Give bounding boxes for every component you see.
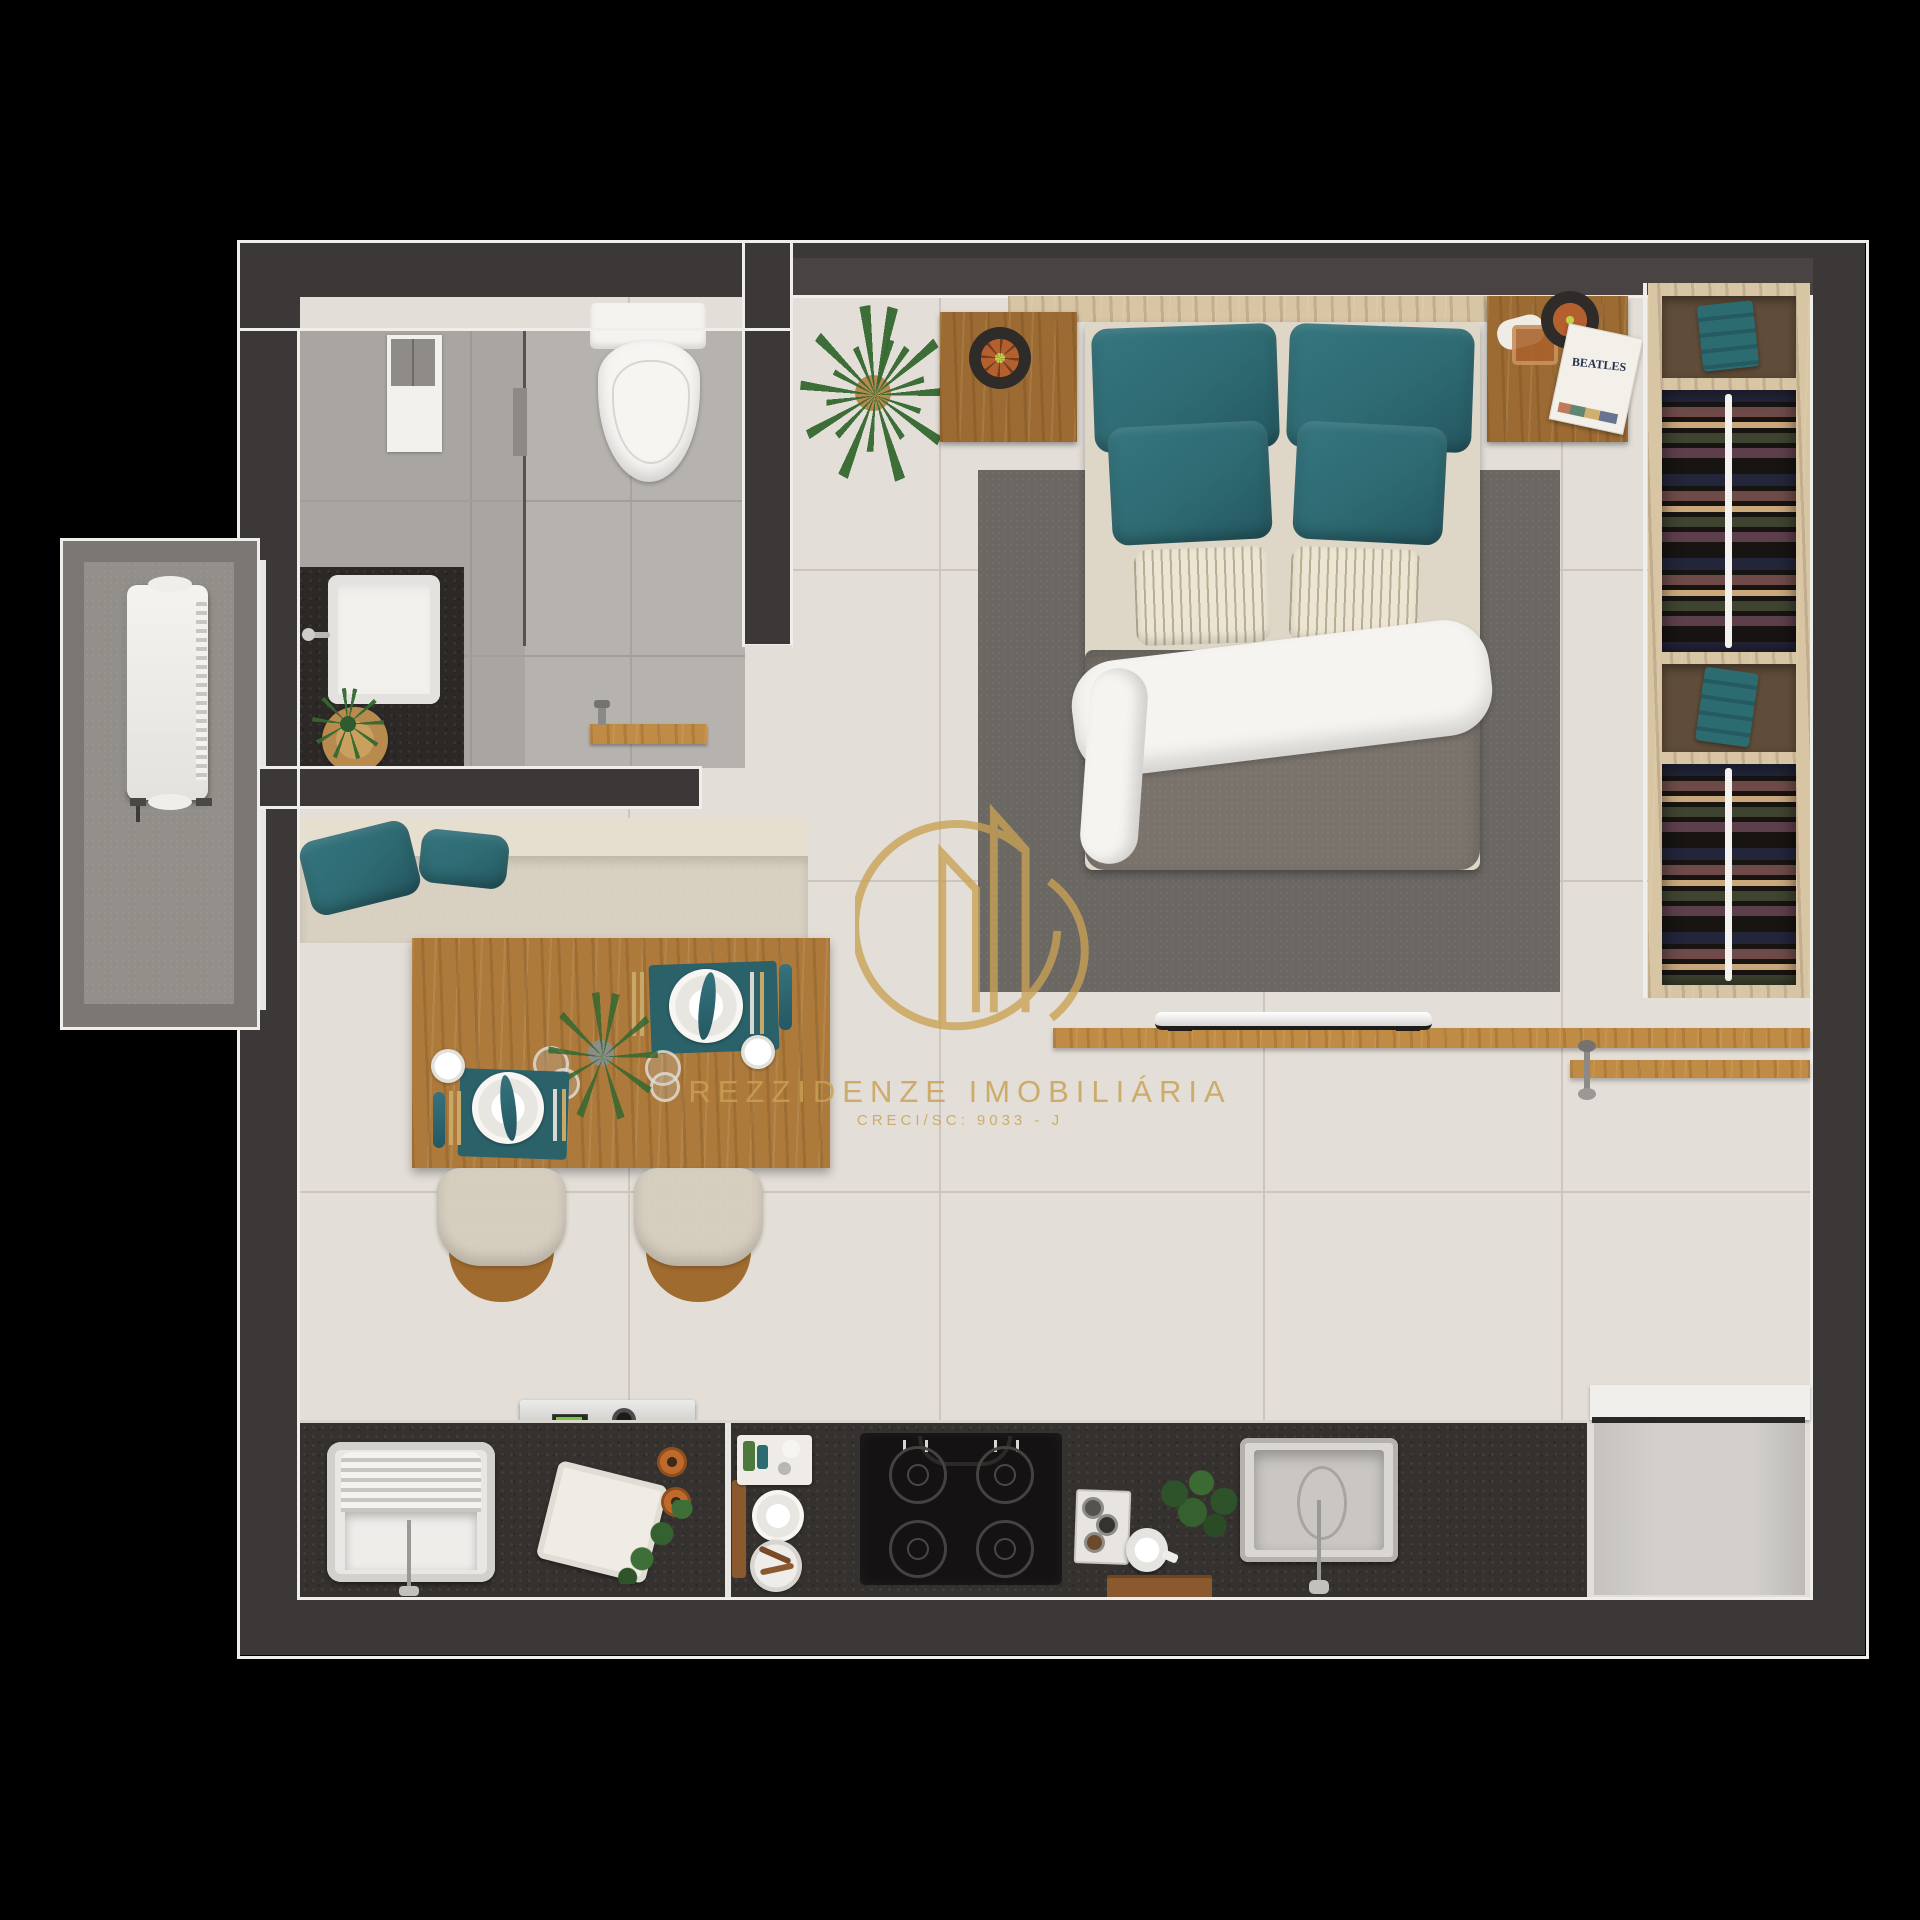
sink-faucet	[1317, 1500, 1321, 1588]
prep-plate	[752, 1490, 804, 1542]
orange-fruit	[657, 1447, 687, 1477]
trim	[790, 243, 793, 647]
folded-clothes-teal	[1697, 300, 1760, 371]
napkin-rolled	[433, 1092, 445, 1148]
wall-bathroom-bottom	[240, 768, 700, 808]
dining-chair	[437, 1168, 566, 1266]
bathroom-shelf	[590, 724, 707, 744]
tv-foot	[1168, 1026, 1192, 1031]
bed-pillow-striped	[1133, 546, 1271, 647]
bathroom-doorway-floor	[745, 645, 792, 768]
trim	[240, 328, 792, 331]
trim	[240, 766, 702, 769]
spice-ball	[778, 1462, 791, 1475]
ac-unit-louvers	[196, 602, 207, 780]
laundry-faucet	[407, 1520, 411, 1592]
wardrobe-trim	[1643, 283, 1647, 998]
ac-unit-frame-line	[124, 592, 127, 792]
tv-shelf	[1053, 1028, 1810, 1048]
spice-bottle-teal	[757, 1445, 768, 1469]
shower-wall-stub	[513, 388, 527, 456]
lower-shelf	[1570, 1060, 1810, 1078]
fridge-top	[1590, 1385, 1810, 1420]
counter-divider	[725, 1423, 731, 1600]
burner	[976, 1446, 1034, 1504]
trim	[1810, 297, 1813, 1600]
cutlery	[449, 1091, 453, 1145]
spice-egg	[782, 1440, 800, 1458]
cutlery	[750, 972, 754, 1034]
shower-glass-panel	[523, 331, 526, 646]
wardrobe-rail	[1725, 768, 1732, 981]
vanity-faucet-knob	[302, 628, 315, 641]
sink-faucet-base	[1309, 1580, 1329, 1594]
shelf-bracket-knob	[1578, 1040, 1596, 1052]
trim	[699, 766, 702, 809]
wall-bottom	[240, 1600, 1865, 1655]
trim	[742, 243, 745, 647]
ac-unit-fan-bulge	[148, 576, 192, 592]
shower-mixer-divider	[412, 339, 414, 386]
bed-pillow-teal-small	[1292, 420, 1448, 546]
ac-unit-foot	[130, 798, 146, 806]
sofa-pillow-teal	[417, 828, 510, 891]
kitchen-plant	[1152, 1468, 1242, 1542]
burner	[976, 1520, 1034, 1578]
ac-unit-foot	[196, 798, 212, 806]
laundry-faucet-handle	[399, 1586, 419, 1596]
ac-unit-pipe	[136, 806, 140, 822]
bathroom-shelf-faucet-cap	[594, 700, 610, 708]
brand-logo	[855, 762, 1093, 1080]
tv-foot	[1396, 1026, 1420, 1031]
floorplan-render: BEATLES	[0, 0, 1920, 1920]
cutlery	[760, 972, 764, 1034]
trim	[297, 331, 300, 1600]
condiment-jar	[1084, 1532, 1105, 1553]
napkin-rolled	[779, 964, 792, 1030]
burner	[889, 1520, 947, 1578]
vinyl-record-spokes	[981, 339, 1019, 377]
cutting-board-flat	[1107, 1578, 1212, 1598]
trim	[240, 806, 702, 809]
wall-right	[1813, 243, 1865, 1655]
side-cup	[741, 1035, 775, 1069]
dining-chair	[634, 1168, 763, 1266]
brand-name: REZZIDENZE IMOBILIÁRIA	[455, 1074, 1465, 1110]
bath-plant-center	[340, 716, 356, 732]
bed-headboard	[1008, 296, 1545, 322]
ac-unit-fan-bulge	[148, 794, 192, 810]
floor-grout-v	[1561, 297, 1563, 1600]
album-art-strip	[1557, 402, 1618, 424]
laundry-washboard	[341, 1452, 481, 1512]
fridge-body	[1594, 1423, 1805, 1595]
cutting-board	[732, 1480, 746, 1578]
trim	[300, 1597, 1810, 1600]
brand-license: CRECI/SC: 9033 - J	[455, 1112, 1465, 1129]
herb-sprig	[618, 1500, 698, 1584]
spice-bottle-green	[743, 1441, 755, 1471]
wall-bathroom-right	[745, 243, 792, 645]
shelf-bracket-knob	[1578, 1088, 1596, 1100]
album-title: BEATLES	[1565, 354, 1632, 376]
vanity-sink	[328, 575, 440, 704]
tv-flatscreen	[1155, 1012, 1432, 1030]
sink-drain-ring	[1297, 1466, 1347, 1540]
burner	[889, 1446, 947, 1504]
folded-clothes-teal	[1695, 667, 1759, 748]
wardrobe-rail	[1725, 394, 1732, 648]
bed-pillow-teal-small	[1107, 420, 1273, 546]
laundry-basin	[345, 1512, 477, 1570]
bath-grout-v	[470, 331, 472, 768]
